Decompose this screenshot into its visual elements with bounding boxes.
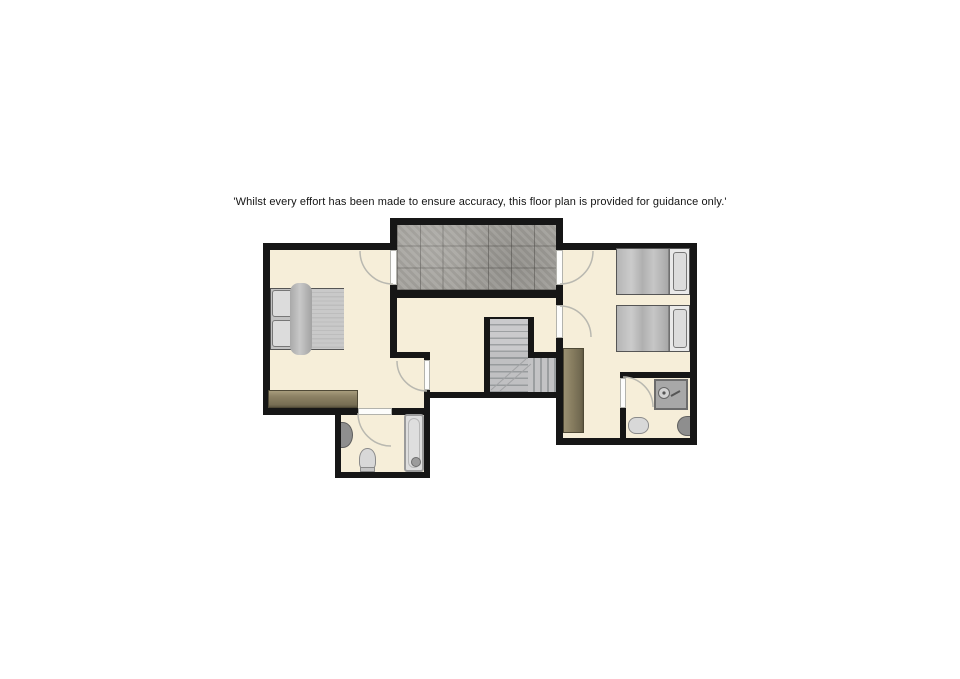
floorplan-canvas: 'Whilst every effort has been made to en… bbox=[0, 0, 960, 679]
door-arcs bbox=[358, 251, 653, 446]
door-arc bbox=[360, 251, 393, 284]
door-arc bbox=[560, 306, 591, 337]
door-arc bbox=[358, 413, 391, 446]
shower-head-icon bbox=[659, 388, 681, 399]
door-swing-overlay bbox=[0, 0, 960, 679]
door-arc bbox=[623, 377, 653, 407]
door-arc bbox=[560, 251, 593, 284]
door-arc bbox=[397, 361, 427, 391]
stair-winder-lines bbox=[491, 359, 531, 391]
